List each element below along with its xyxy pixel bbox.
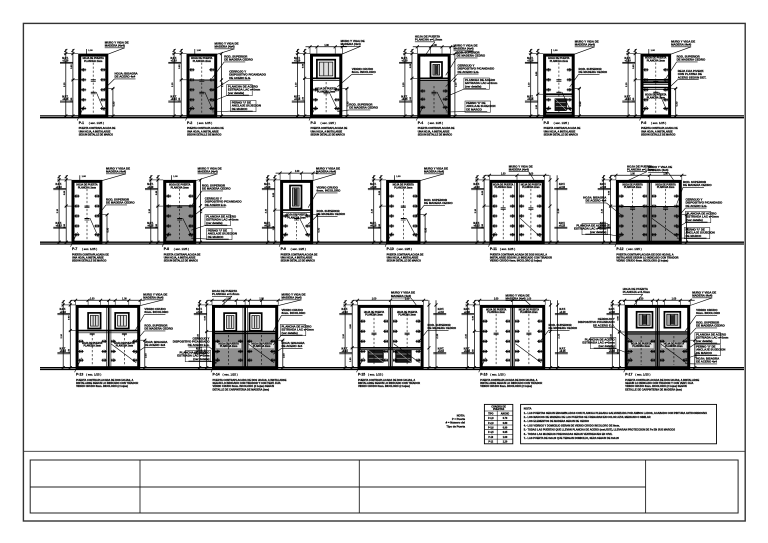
svg-text:PLANCHA 2mm: PLANCHA 2mm bbox=[522, 186, 539, 189]
svg-text:2.10: 2.10 bbox=[61, 333, 63, 338]
svg-text:P-17: P-17 bbox=[625, 373, 632, 377]
svg-text:( esc. 1/25 ): ( esc. 1/25 ) bbox=[500, 247, 515, 251]
svg-text:( esc. 1/25 ): ( esc. 1/25 ) bbox=[86, 373, 101, 377]
svg-text:1.00: 1.00 bbox=[90, 298, 95, 300]
svg-text:1.00: 1.00 bbox=[639, 298, 644, 300]
svg-text:DE MADERA CEDRO: DE MADERA CEDRO bbox=[317, 212, 346, 216]
svg-text:Tipo de Puerta: Tipo de Puerta bbox=[446, 424, 465, 428]
svg-text:MADERA (4x4): MADERA (4x4) bbox=[692, 294, 712, 298]
svg-text:( esc. 1/25 ): ( esc. 1/25 ) bbox=[651, 121, 666, 125]
svg-text:DE MADERA CEDRO: DE MADERA CEDRO bbox=[202, 187, 231, 191]
svg-text:(ver detalle): (ver detalle) bbox=[206, 221, 222, 225]
svg-text:( esc. 1/25 ): ( esc. 1/25 ) bbox=[89, 121, 104, 125]
svg-text:P-3,6: P-3,6 bbox=[488, 428, 494, 430]
svg-text:( esc. 1/25 ): ( esc. 1/25 ) bbox=[428, 121, 443, 125]
svg-text:6mm. INCOLORO: 6mm. INCOLORO bbox=[282, 311, 307, 315]
svg-text:(ver detalle): (ver detalle) bbox=[590, 230, 606, 234]
svg-text:1.00: 1.00 bbox=[324, 45, 329, 47]
svg-text:( esc. 1/25 ): ( esc. 1/25 ) bbox=[174, 247, 189, 251]
svg-text:DE ACERO E.G.: DE ACERO E.G. bbox=[686, 204, 708, 208]
svg-text:PLANCHA 2mm: PLANCHA 2mm bbox=[647, 59, 666, 62]
svg-text:P = Puerta: P = Puerta bbox=[452, 417, 466, 421]
svg-text:0.90: 0.90 bbox=[282, 353, 285, 358]
svg-text:PLANCHA 2mm: PLANCHA 2mm bbox=[647, 96, 666, 99]
svg-text:PLANCHA e=1.5mm: PLANCHA e=1.5mm bbox=[415, 38, 443, 42]
svg-text:MADERA (4x4): MADERA (4x4) bbox=[198, 170, 218, 174]
svg-text:P-10: P-10 bbox=[387, 247, 394, 251]
svg-text:( esc. 1/25 ): ( esc. 1/25 ) bbox=[397, 247, 412, 251]
svg-text:SEGUN DETALLE DE MARCO: SEGUN DETALLE DE MARCO bbox=[164, 260, 198, 263]
svg-text:PLANCHA 2mm: PLANCHA 2mm bbox=[624, 186, 641, 189]
svg-text:MADERA (4x4): MADERA (4x4) bbox=[671, 43, 691, 47]
svg-text:5.- TODAS LAS PUERTAS QUE LLEV: 5.- TODAS LAS PUERTAS QUE LLEVAN PLANCHA… bbox=[524, 428, 676, 432]
svg-text:1.00: 1.00 bbox=[503, 437, 508, 439]
svg-text:P-9: P-9 bbox=[281, 247, 286, 251]
svg-text:HOJA DE PUERTA: HOJA DE PUERTA bbox=[486, 309, 507, 312]
svg-text:DE MADERA CEDRO: DE MADERA CEDRO bbox=[579, 70, 608, 74]
svg-text:MADERA (4x4): MADERA (4x4) bbox=[506, 297, 526, 301]
svg-text:SEGUN DETALLE DE MARCO: SEGUN DETALLE DE MARCO bbox=[72, 260, 106, 263]
svg-text:P-4: P-4 bbox=[418, 121, 423, 125]
svg-text:(ver detalle): (ver detalle) bbox=[687, 218, 703, 222]
svg-text:2.10: 2.10 bbox=[558, 333, 561, 338]
svg-text:0.90: 0.90 bbox=[675, 101, 678, 106]
svg-text:( esc. 1/25 ): ( esc. 1/25 ) bbox=[291, 247, 306, 251]
svg-text:PLANCHA e=1.5mm: PLANCHA e=1.5mm bbox=[623, 290, 651, 294]
svg-text:MADERA (4x4): MADERA (4x4) bbox=[575, 43, 595, 47]
svg-text:0.90: 0.90 bbox=[107, 227, 110, 232]
svg-text:DE ACERO 4x4: DE ACERO 4x4 bbox=[696, 360, 717, 364]
svg-text:0.80: 0.80 bbox=[503, 423, 508, 425]
svg-text:(ver detalle): (ver detalle) bbox=[465, 84, 481, 88]
svg-text:P-12: P-12 bbox=[488, 442, 494, 444]
svg-text:SEGUN DETALLE DE MARCO: SEGUN DETALLE DE MARCO bbox=[641, 134, 675, 137]
svg-text:MADERA (4x4): MADERA (4x4) bbox=[282, 296, 302, 300]
svg-text:0.70: 0.70 bbox=[503, 418, 508, 420]
svg-text:1.20: 1.20 bbox=[503, 442, 508, 444]
svg-text:ACERO SEGUN DET.: ACERO SEGUN DET. bbox=[678, 75, 707, 79]
svg-text:MADERA (4x4): MADERA (4x4) bbox=[391, 294, 411, 298]
svg-text:6.- TODAS LAS MADERAS PRECISAD: 6.- TODAS LAS MADERAS PRECISADAS SERAN V… bbox=[524, 432, 613, 436]
svg-text:DE MADERA CEDRO: DE MADERA CEDRO bbox=[696, 324, 725, 328]
svg-text:VIDRIO CRUDO 6mm. INCOLORO (2: VIDRIO CRUDO 6mm. INCOLORO (2 hojas) bbox=[76, 384, 128, 388]
svg-text:P-8: P-8 bbox=[164, 247, 169, 251]
svg-text:0.90: 0.90 bbox=[503, 428, 508, 430]
svg-text:1.00: 1.00 bbox=[372, 298, 377, 300]
svg-text:0.90: 0.90 bbox=[579, 101, 582, 106]
svg-text:NOTA:: NOTA: bbox=[457, 414, 465, 418]
svg-text:4.- LOS VIDRIOS Y DOMICILIO SE: 4.- LOS VIDRIOS Y DOMICILIO SERAN DE VID… bbox=[524, 423, 620, 427]
svg-text:1.00: 1.00 bbox=[672, 298, 677, 300]
svg-text:6mm. INCOLORO: 6mm. INCOLORO bbox=[696, 311, 721, 315]
svg-text:PLANCHA e=1.5mm: PLANCHA e=1.5mm bbox=[212, 292, 240, 296]
svg-text:( esc. 1/25 ): ( esc. 1/25 ) bbox=[82, 247, 97, 251]
svg-text:MADERA (4x4): MADERA (4x4) bbox=[143, 296, 163, 300]
svg-text:SEGUN DETALLE DE MARCO: SEGUN DETALLE DE MARCO bbox=[281, 260, 315, 263]
svg-text:0.90: 0.90 bbox=[113, 101, 116, 106]
svg-text:P-14: P-14 bbox=[213, 373, 220, 377]
svg-text:MADERA (4x4): MADERA (4x4) bbox=[341, 42, 361, 46]
svg-text:7.- LAS PUERTA DE 6x0.20 QUE T: 7.- LAS PUERTA DE 6x0.20 QUE TENGAN DOMI… bbox=[524, 436, 620, 440]
svg-text:P-1: P-1 bbox=[79, 121, 84, 125]
svg-text:1.00: 1.00 bbox=[663, 173, 668, 175]
svg-text:VIDRIO CRUDO 6mm. INCOLORO (2: VIDRIO CRUDO 6mm. INCOLORO (2 hojas) bbox=[490, 259, 542, 263]
svg-text:DE ACERO E.G.: DE ACERO E.G. bbox=[188, 343, 210, 347]
svg-text:DE MARCO: DE MARCO bbox=[466, 107, 482, 111]
svg-text:DE ACERO E.G.: DE ACERO E.G. bbox=[229, 76, 251, 80]
svg-text:(ver detalle): (ver detalle) bbox=[193, 357, 209, 361]
svg-text:DE ACERO 4x4: DE ACERO 4x4 bbox=[586, 199, 607, 203]
svg-text:P-2,9: P-2,9 bbox=[488, 423, 494, 425]
svg-text:SEGUN DETALLE DE MARCO: SEGUN DETALLE DE MARCO bbox=[387, 260, 421, 263]
svg-text:PLANCHA 2mm: PLANCHA 2mm bbox=[78, 186, 97, 189]
svg-text:DE ACERO 4x4: DE ACERO 4x4 bbox=[115, 75, 136, 79]
svg-text:DE MADERA CEDRO: DE MADERA CEDRO bbox=[428, 326, 457, 330]
svg-text:1.00: 1.00 bbox=[405, 298, 410, 300]
svg-text:HOJA DE PUERTA: HOJA DE PUERTA bbox=[622, 184, 643, 187]
svg-text:PLANCHA 2mm: PLANCHA 2mm bbox=[657, 186, 674, 189]
svg-text:HOJA DE PUERTA: HOJA DE PUERTA bbox=[519, 309, 540, 312]
svg-text:MADERA (4x4): MADERA (4x4) bbox=[105, 44, 125, 48]
svg-text:HOJA DE PUERTA: HOJA DE PUERTA bbox=[397, 311, 418, 314]
svg-text:MADERA (4x4): MADERA (4x4) bbox=[316, 170, 336, 174]
svg-text:1.00: 1.00 bbox=[122, 298, 127, 300]
svg-text:( esc. 1/25 ): ( esc. 1/25 ) bbox=[368, 373, 383, 377]
svg-text:0.95: 0.95 bbox=[503, 432, 508, 434]
svg-text:P-13: P-13 bbox=[76, 373, 83, 377]
svg-text:SEGUN DETALLE DE MARCO: SEGUN DETALLE DE MARCO bbox=[187, 134, 221, 137]
svg-text:DE MADERA CEDRO: DE MADERA CEDRO bbox=[349, 106, 378, 110]
svg-text:P-16: P-16 bbox=[480, 373, 487, 377]
svg-text:P-3: P-3 bbox=[311, 121, 316, 125]
svg-text:DE MARCO: DE MARCO bbox=[686, 234, 702, 238]
svg-text:PLANCHA 2mm: PLANCHA 2mm bbox=[550, 60, 569, 63]
svg-text:P-1,8: P-1,8 bbox=[488, 418, 494, 420]
svg-text:( esc. 1/25 ): ( esc. 1/25 ) bbox=[626, 247, 641, 251]
svg-text:1.00: 1.00 bbox=[630, 173, 635, 175]
svg-text:(ver detalle): (ver detalle) bbox=[598, 344, 614, 348]
svg-text:P-2: P-2 bbox=[187, 121, 192, 125]
svg-text:VIDRIO CRUDO 6mm. INCOLORO (2: VIDRIO CRUDO 6mm. INCOLORO (2 hojas) bbox=[616, 259, 668, 263]
svg-text:3.- LOS ELEMENTOS DE MADERA SE: 3.- LOS ELEMENTOS DE MADERA SERAN DE CED… bbox=[524, 419, 589, 423]
svg-text:DE MADERA CEDRO: DE MADERA CEDRO bbox=[424, 201, 453, 205]
svg-text:(ver detalle): (ver detalle) bbox=[228, 91, 244, 95]
svg-text:P-15: P-15 bbox=[358, 373, 365, 377]
svg-text:1.00: 1.00 bbox=[432, 45, 437, 47]
svg-text:SEGUN DETALLE DE MARCO: SEGUN DETALLE DE MARCO bbox=[79, 134, 113, 137]
svg-text:P-5: P-5 bbox=[544, 121, 549, 125]
svg-text:0.90: 0.90 bbox=[317, 227, 320, 232]
svg-text:SEGUN DETALLE DE MARCO: SEGUN DETALLE DE MARCO bbox=[544, 134, 578, 137]
svg-text:DE ACERO 4x4: DE ACERO 4x4 bbox=[144, 343, 165, 347]
svg-text:HOJA DE PUERTA: HOJA DE PUERTA bbox=[655, 184, 676, 187]
svg-text:1.00: 1.00 bbox=[527, 298, 532, 300]
svg-text:PLANCHA 2mm: PLANCHA 2mm bbox=[520, 311, 537, 314]
svg-text:VIDRIO CRUDO 6mm. INCOLORO (2: VIDRIO CRUDO 6mm. INCOLORO (2 hojas) bbox=[358, 384, 410, 388]
svg-text:( esc. 1/25 ): ( esc. 1/25 ) bbox=[197, 121, 212, 125]
svg-text:( esc. 1/25 ): ( esc. 1/25 ) bbox=[554, 121, 569, 125]
svg-text:P-7: P-7 bbox=[72, 247, 77, 251]
svg-text:PLANCHA 2mm: PLANCHA 2mm bbox=[394, 186, 413, 189]
svg-text:DE MADERA CEDRO: DE MADERA CEDRO bbox=[549, 326, 578, 330]
svg-text:( esc. 1/25 ): ( esc. 1/25 ) bbox=[490, 373, 505, 377]
svg-text:PLANCHA 2mm: PLANCHA 2mm bbox=[171, 186, 190, 189]
svg-text:# = Numero del: # = Numero del bbox=[446, 421, 466, 425]
svg-text:DE ACERO 4x4: DE ACERO 4x4 bbox=[282, 344, 303, 348]
svg-text:DE MARCO: DE MARCO bbox=[696, 351, 712, 355]
svg-text:DE MADERA CEDRO: DE MADERA CEDRO bbox=[144, 327, 173, 331]
svg-text:P-12: P-12 bbox=[616, 247, 623, 251]
svg-text:HOJA DE PUERTA: HOJA DE PUERTA bbox=[493, 183, 514, 186]
svg-text:MADERA (4x4): MADERA (4x4) bbox=[215, 45, 235, 49]
svg-text:PLANCHA 2mm: PLANCHA 2mm bbox=[84, 60, 103, 63]
svg-text:DE ACERO E.G.: DE ACERO E.G. bbox=[593, 323, 615, 327]
svg-text:( esc. 1/25 ): ( esc. 1/25 ) bbox=[223, 373, 238, 377]
svg-text:PLANCHA 2mm: PLANCHA 2mm bbox=[193, 60, 212, 63]
svg-text:MADERA (4x4): MADERA (4x4) bbox=[106, 170, 126, 174]
svg-text:( esc. 1/25 ): ( esc. 1/25 ) bbox=[635, 373, 650, 377]
svg-text:DE MADERA CEDRO: DE MADERA CEDRO bbox=[677, 58, 706, 62]
svg-text:DETALLE DE CARPINTERIA DE MADE: DETALLE DE CARPINTERIA DE MADERA (lam) bbox=[213, 387, 270, 391]
svg-text:1.00: 1.00 bbox=[295, 171, 300, 173]
svg-text:DE MARCO: DE MARCO bbox=[208, 235, 224, 239]
svg-text:PLANCHA 2mm: PLANCHA 2mm bbox=[487, 311, 504, 314]
svg-text:DE ACERO E.G.: DE ACERO E.G. bbox=[458, 70, 480, 74]
svg-text:DE MARCO: DE MARCO bbox=[232, 107, 248, 111]
svg-text:(ver detalle): (ver detalle) bbox=[282, 331, 298, 335]
svg-text:SEGUN DETALLE DE MARCO: SEGUN DETALLE DE MARCO bbox=[311, 134, 345, 137]
svg-text:1.00: 1.00 bbox=[259, 298, 264, 300]
svg-text:6mm. INCOLORO: 6mm. INCOLORO bbox=[144, 310, 169, 314]
svg-text:TIPO: TIPO bbox=[488, 414, 494, 416]
svg-text:6mm. INCOLORO: 6mm. INCOLORO bbox=[317, 189, 342, 193]
svg-text:DE MADERA CEDRO: DE MADERA CEDRO bbox=[683, 183, 712, 187]
svg-text:6mm. INCOLORO: 6mm. INCOLORO bbox=[352, 70, 377, 74]
svg-text:DE MADERA CEDRO: DE MADERA CEDRO bbox=[457, 54, 486, 58]
svg-text:NOTA: NOTA bbox=[524, 406, 532, 410]
svg-text:DE ACERO E.G.: DE ACERO E.G. bbox=[205, 203, 227, 207]
svg-text:PLANCHA 2mm: PLANCHA 2mm bbox=[495, 186, 512, 189]
svg-text:P-4,5: P-4,5 bbox=[488, 431, 494, 434]
svg-text:ANCHO: ANCHO bbox=[501, 413, 510, 416]
svg-text:MADERA (4x4): MADERA (4x4) bbox=[509, 168, 529, 172]
svg-text:0.90: 0.90 bbox=[144, 353, 147, 358]
svg-text:1.00: 1.00 bbox=[494, 298, 499, 300]
svg-text:2.- LOS MARCOS DE MADERA DE LA: 2.- LOS MARCOS DE MADERA DE LAS PUERTAS … bbox=[524, 415, 651, 419]
svg-text:(ver detalle): (ver detalle) bbox=[696, 339, 712, 343]
svg-text:2.10: 2.10 bbox=[557, 208, 560, 213]
svg-text:DE MADERA CEDRO: DE MADERA CEDRO bbox=[224, 58, 253, 62]
svg-text:1.- LAS PUERTAS SERAN ENSAMBLA: 1.- LAS PUERTAS SERAN ENSAMBLADAS CON PL… bbox=[524, 411, 707, 415]
svg-text:0.90: 0.90 bbox=[425, 227, 428, 232]
svg-text:P-6: P-6 bbox=[641, 121, 646, 125]
svg-text:PLANCHA e=1.5mm: PLANCHA e=1.5mm bbox=[627, 168, 655, 172]
svg-text:MADERA (4x4): MADERA (4x4) bbox=[424, 170, 444, 174]
svg-text:SEGUN DETALLE DE MARCO: SEGUN DETALLE DE MARCO bbox=[418, 134, 452, 137]
svg-text:DE MADERA CEDRO: DE MADERA CEDRO bbox=[106, 201, 135, 205]
svg-text:1.00: 1.00 bbox=[501, 173, 506, 175]
svg-text:2.10: 2.10 bbox=[436, 333, 439, 338]
svg-text:HOJA DE PUERTA: HOJA DE PUERTA bbox=[364, 311, 385, 314]
svg-text:HOJA DE PUERTA: HOJA DE PUERTA bbox=[521, 183, 542, 186]
svg-text:DETALLE DE CARPINTERIA DE MADE: DETALLE DE CARPINTERIA DE MADERA (lam) bbox=[625, 387, 682, 391]
svg-text:( esc. 1/25 ): ( esc. 1/25 ) bbox=[321, 121, 336, 125]
svg-text:P-10: P-10 bbox=[488, 437, 494, 439]
svg-text:VIDRIO CRUDO 6mm. INCOLORO (2: VIDRIO CRUDO 6mm. INCOLORO (2 hojas) bbox=[480, 384, 532, 388]
svg-text:P-11: P-11 bbox=[490, 247, 497, 251]
